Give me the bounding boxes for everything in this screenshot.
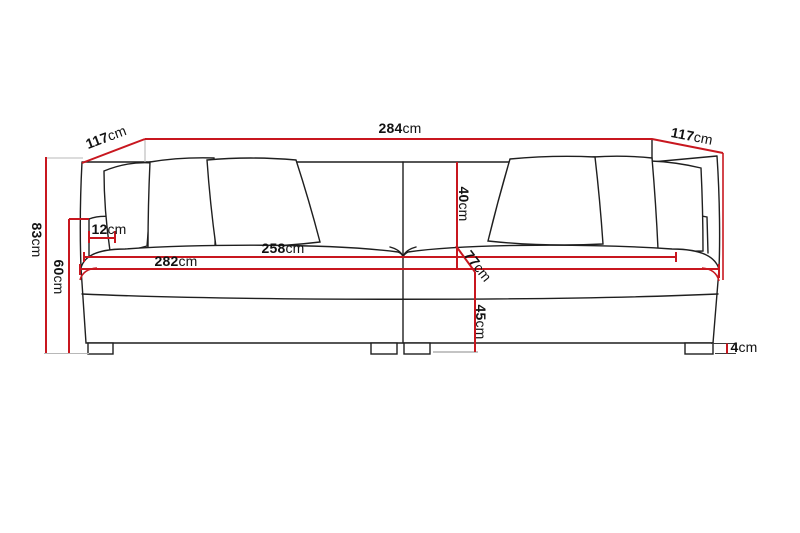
- dimension-label-back-cushion-height: 40cm: [456, 186, 472, 221]
- sofa-leg: [685, 343, 713, 354]
- dimension-unit: cm: [29, 238, 45, 257]
- sofa-artwork: [80, 139, 719, 354]
- sofa-leg: [88, 343, 113, 354]
- sofa-leg: [371, 343, 397, 354]
- pillow: [651, 161, 703, 251]
- dimension-value: 45: [473, 304, 489, 320]
- dimension-value: 40: [456, 186, 472, 202]
- sofa-leg: [404, 343, 430, 354]
- dimension-label-inner-width: 258cm: [261, 240, 304, 256]
- dimension-value: 12: [91, 221, 107, 237]
- dimension-value: 4: [730, 339, 738, 355]
- dimension-label-total-height: 83cm: [29, 222, 45, 257]
- dimension-unit: cm: [285, 240, 304, 256]
- pillow: [488, 156, 603, 245]
- diagram-canvas: 284cm 117cm 117cm 83cm 60cm 12cm 258cm 2…: [0, 0, 800, 533]
- dimension-unit: cm: [456, 202, 472, 221]
- pillow: [207, 158, 320, 247]
- dimension-value: 258: [261, 240, 285, 256]
- dimension-unit: cm: [178, 253, 197, 269]
- sofa-legs: [88, 343, 713, 354]
- dimension-unit: cm: [738, 339, 757, 355]
- dimension-value: 284: [378, 120, 402, 136]
- dimension-label-arm-width: 12cm: [91, 221, 126, 237]
- dimension-unit: cm: [51, 275, 67, 294]
- sofa-dimension-drawing: [0, 0, 800, 533]
- dimension-unit: cm: [692, 129, 714, 148]
- dimension-label-seat-height: 45cm: [473, 304, 489, 339]
- dimension-unit: cm: [402, 120, 421, 136]
- dimension-label-seat-width: 282cm: [154, 253, 197, 269]
- dimension-label-arm-height: 60cm: [51, 259, 67, 294]
- pillow: [148, 158, 215, 250]
- dimension-label-leg-height: 4cm: [730, 339, 757, 355]
- dimension-value: 60: [51, 259, 67, 275]
- dimension-unit: cm: [473, 320, 489, 339]
- dimension-label-total-width: 284cm: [378, 120, 421, 136]
- dimension-value: 282: [154, 253, 178, 269]
- dimension-value: 83: [29, 222, 45, 238]
- dimension-unit: cm: [107, 221, 126, 237]
